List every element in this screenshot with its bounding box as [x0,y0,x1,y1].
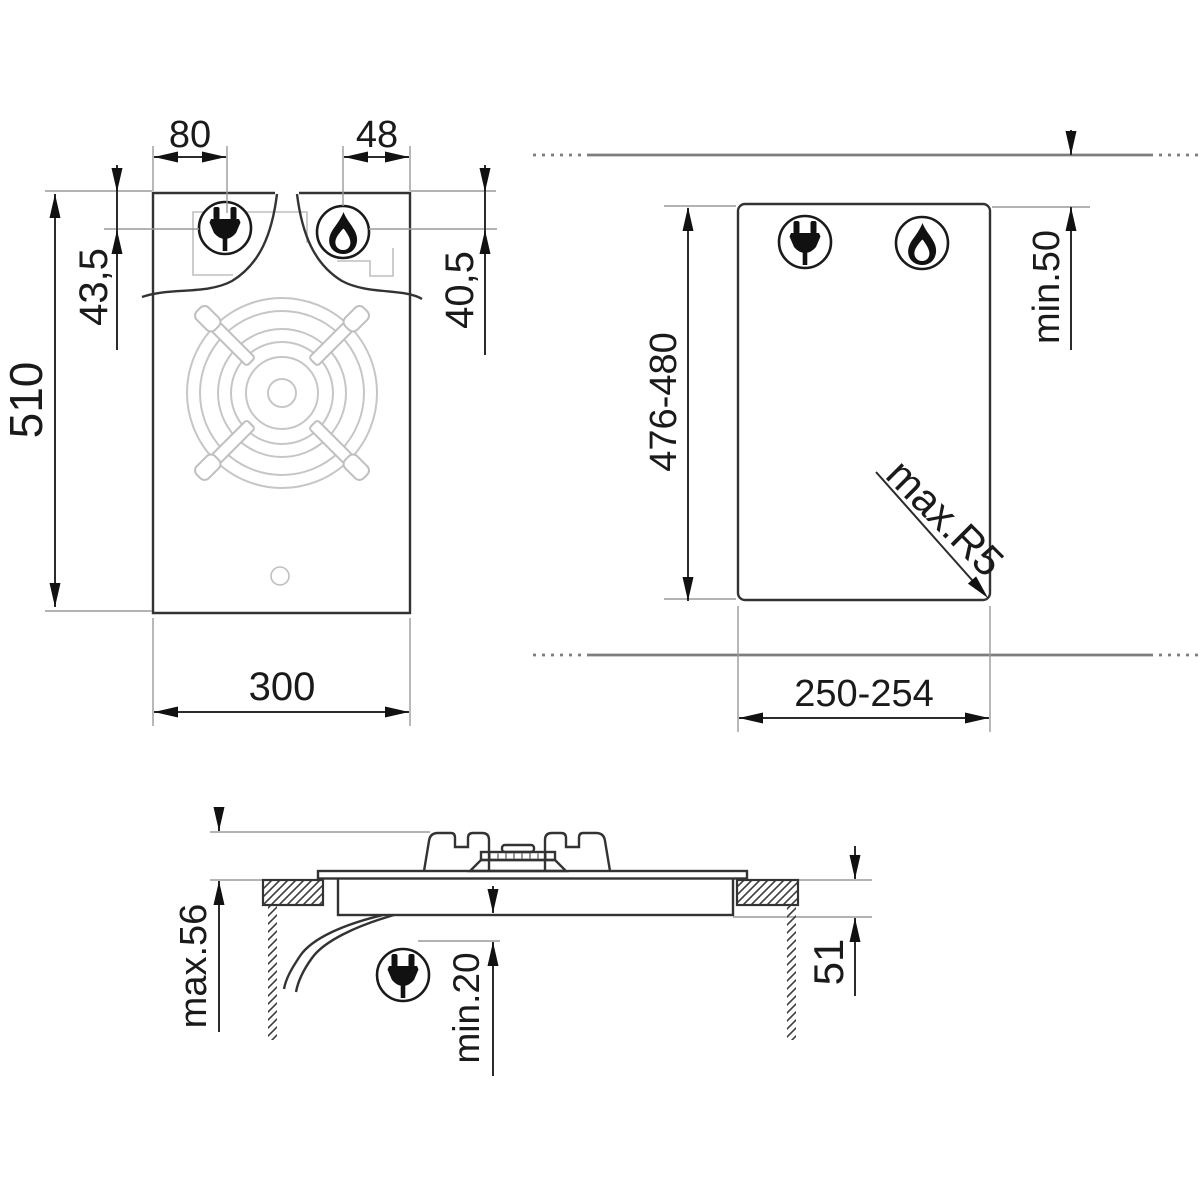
burner-section [424,833,610,871]
burner-skirt [470,860,566,871]
section-view: max.56 min.20 51 [173,807,872,1076]
burner-cap [502,845,534,852]
dim-hob-width: 300 [249,665,316,709]
dim-hob-height: 510 [0,362,52,439]
dim-burner-offset-y: 40,5 [438,251,482,329]
dim-wall-clearance: min.50 [1026,230,1068,344]
dim-overall-height: max.56 [173,904,215,1029]
hob-surface [153,193,410,613]
cutout-view: 476-480 min.50 max.R5 250-254 [533,130,1200,732]
dim-cutout-width: 250-254 [794,673,933,715]
dim-plug-offset-y: 43,5 [72,248,116,326]
dim-cutout-height: 476-480 [643,332,685,471]
power-plug-icon [199,202,251,254]
dim-burner-offset-x: 48 [356,114,398,156]
cabinet-panel-left [268,905,277,1040]
pan-support-prong-left [424,833,489,871]
worktop-hatch-left [263,880,323,905]
dim-recess-depth: 51 [805,939,852,986]
hob-tub-section [338,878,733,915]
dim-bottom-clearance: min.20 [446,952,487,1063]
dim-plug-offset-x: 80 [169,114,211,156]
power-plug-icon [779,216,831,268]
front-view: 80 48 510 43,5 40,5 300 [0,114,497,726]
worktop-hatch-right [737,880,798,905]
gas-flame-icon [896,217,948,269]
cabinet-panel-right [787,905,796,1040]
installation-diagram: 80 48 510 43,5 40,5 300 [0,0,1200,1200]
power-plug-icon [377,949,429,1001]
gas-flame-icon [317,206,369,258]
